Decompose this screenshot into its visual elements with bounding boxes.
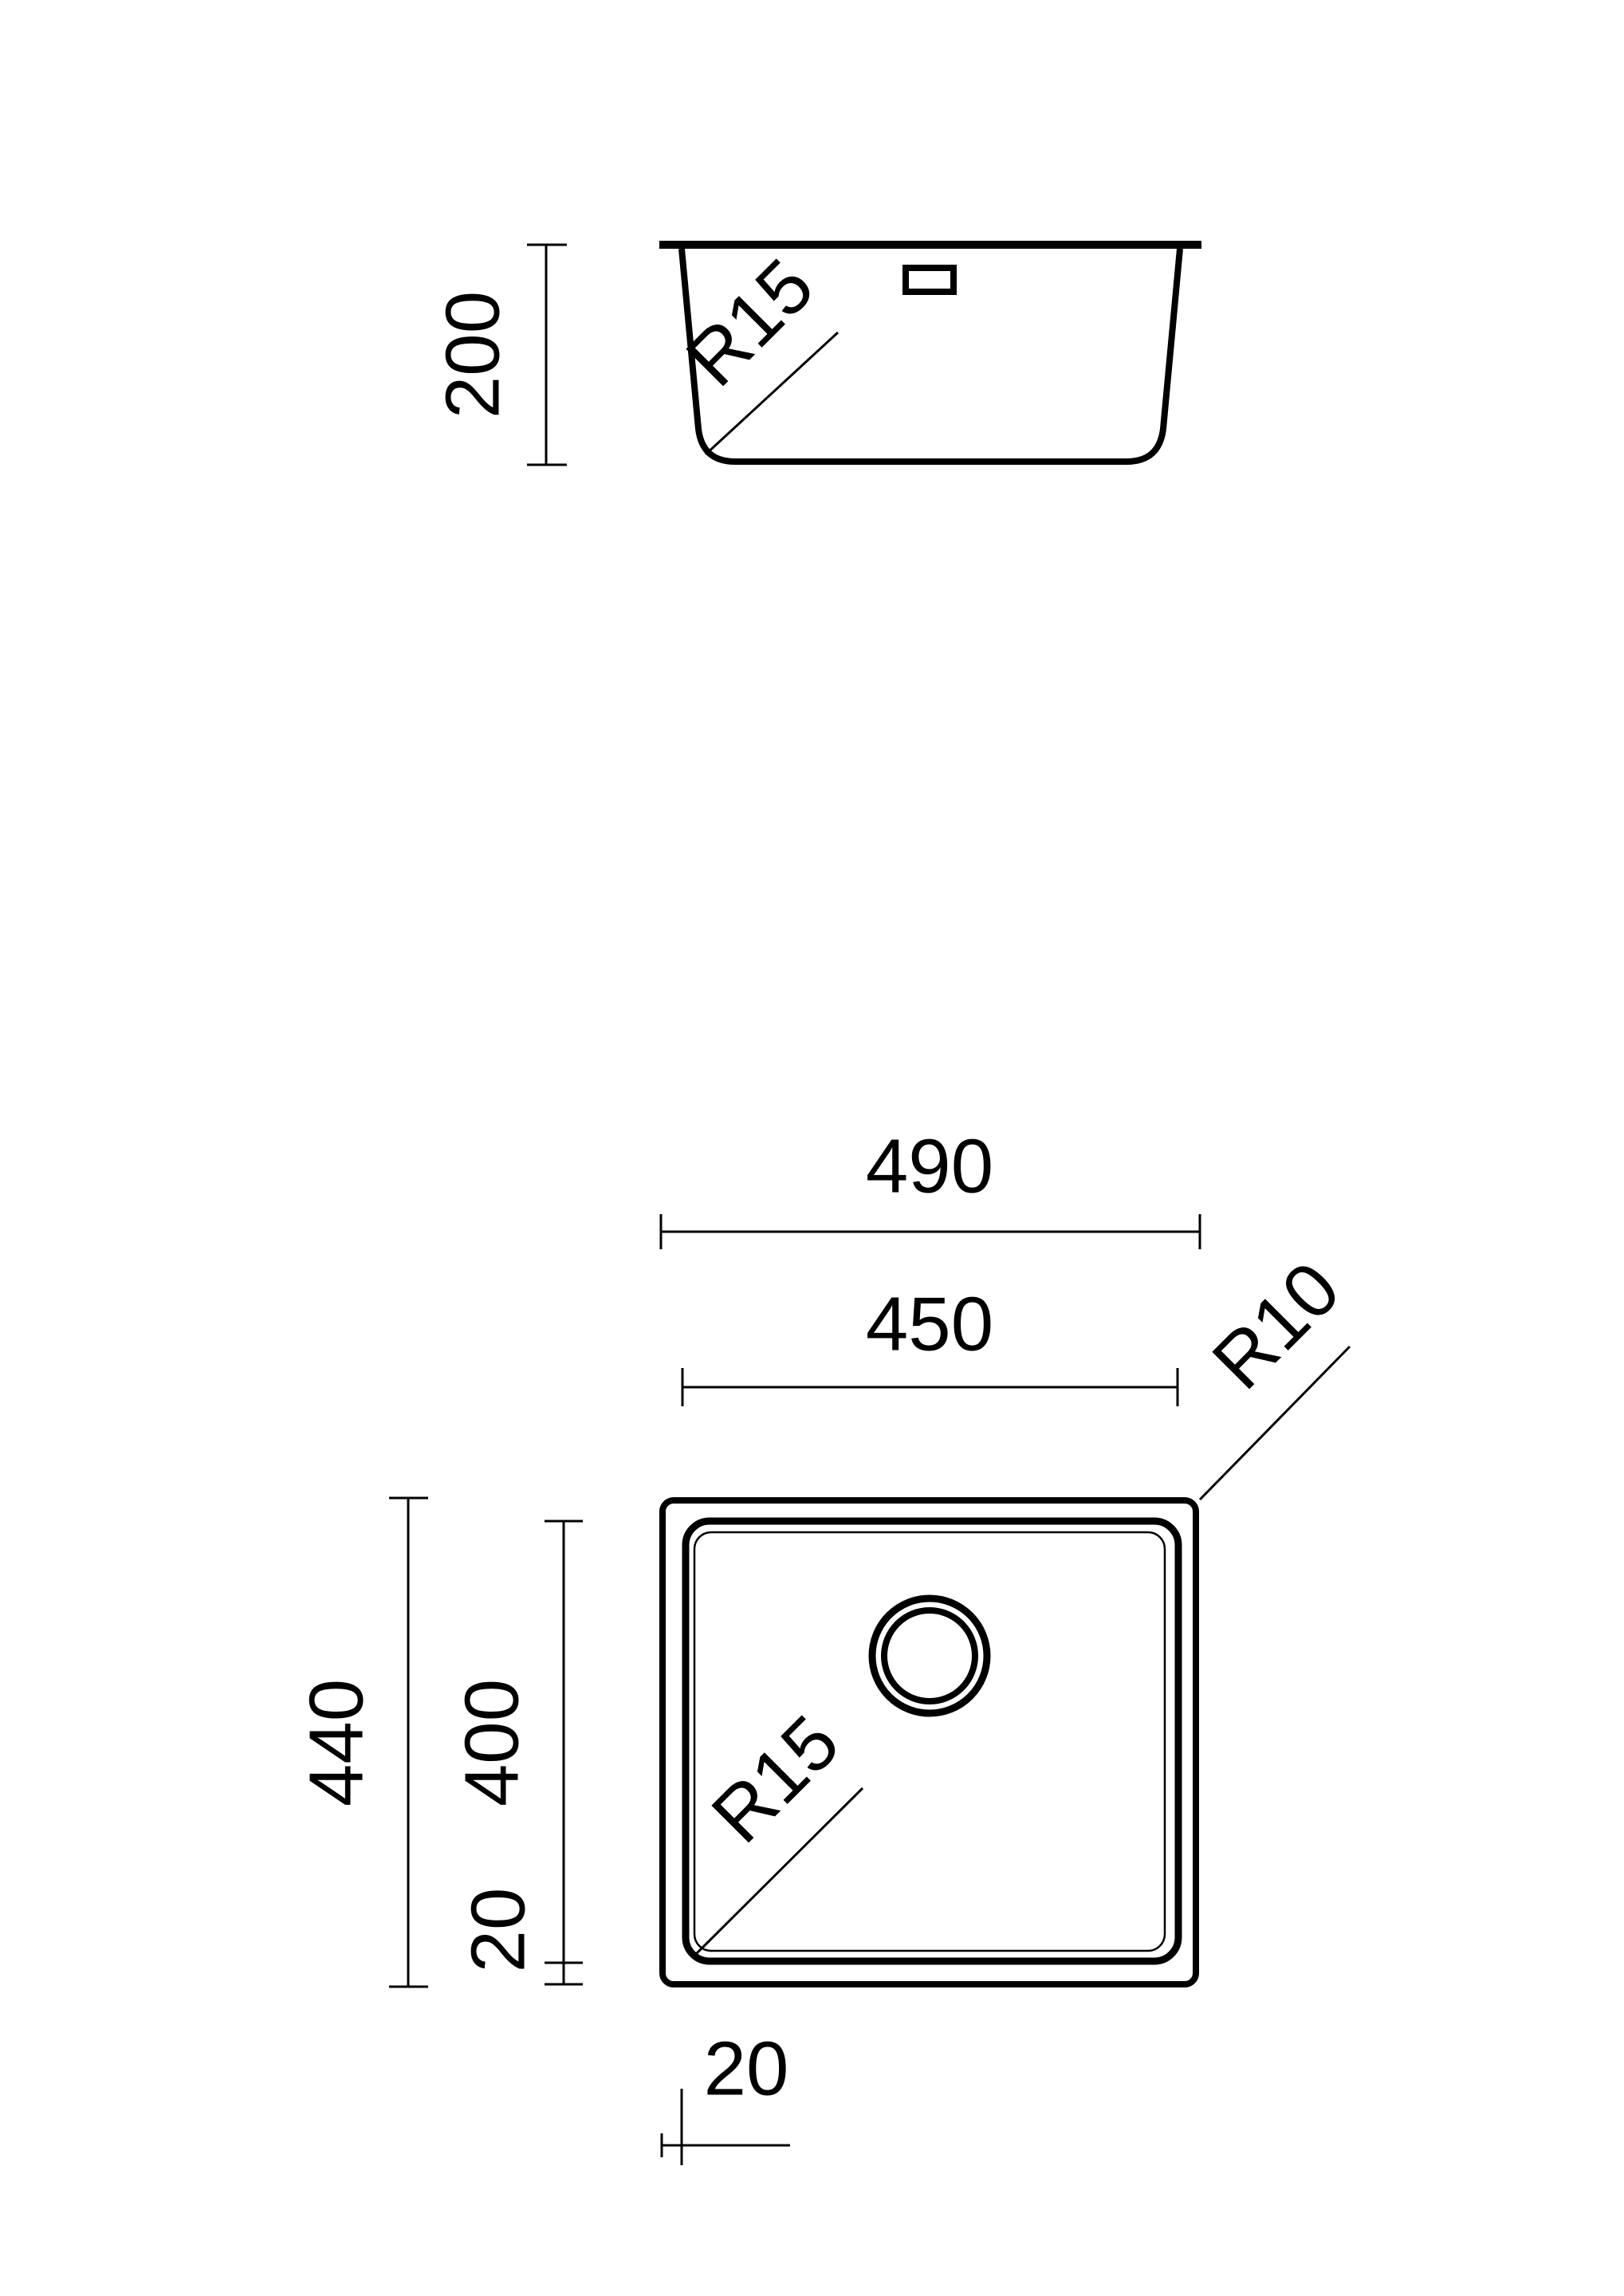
drain-outer-circle (872, 1598, 987, 1713)
plan-view: 490 450 R10 440 (294, 1124, 1356, 2165)
sink-dimension-drawing: R15 200 490 (0, 0, 1624, 2296)
side-view: R15 200 (431, 241, 1201, 465)
technical-drawing-page: R15 200 490 (0, 0, 1624, 2296)
dim-200-label: 200 (431, 291, 516, 419)
dim-20-bottom-label: 20 (704, 2027, 789, 2112)
bowl-width-dimension: 450 (682, 1282, 1178, 1406)
bowl-horizontal-offset-dimension: 20 (662, 2027, 790, 2165)
plan-r15-label: R15 (696, 1700, 855, 1859)
side-height-dimension: 200 (431, 245, 567, 465)
side-rim-line (659, 241, 1201, 249)
overall-width-dimension: 490 (661, 1124, 1200, 1249)
dim-440-label: 440 (294, 1679, 379, 1807)
dim-20-vertical-label: 20 (456, 1888, 541, 1973)
drain-inner-circle (884, 1610, 975, 1701)
overall-depth-dimension: 440 (294, 1498, 428, 1987)
dim-450-label: 450 (866, 1282, 993, 1367)
dim-400-label: 400 (450, 1679, 535, 1807)
overflow-hole (906, 268, 954, 292)
plan-outer-edge (663, 1500, 1196, 1984)
dim-490-label: 490 (866, 1124, 993, 1209)
bowl-depth-dimension: 400 20 (450, 1521, 583, 1984)
plan-r10-label: R10 (1197, 1246, 1356, 1406)
